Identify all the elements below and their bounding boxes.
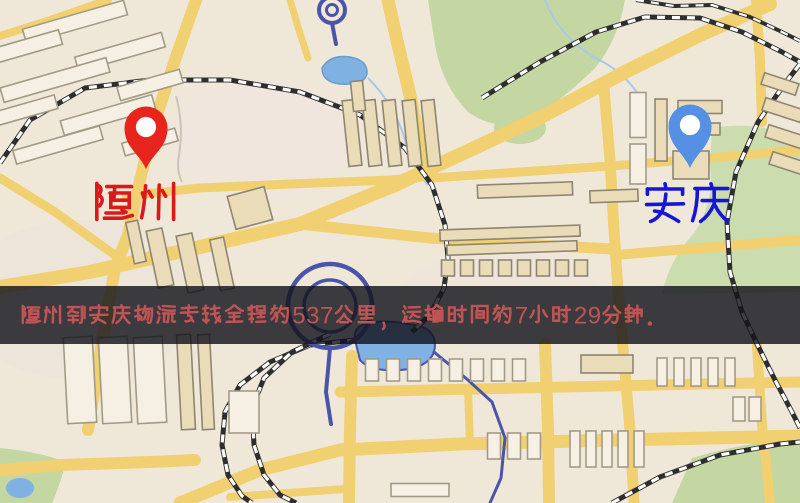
svg-text:9: 9 — [588, 303, 601, 330]
svg-text:7: 7 — [515, 303, 528, 330]
svg-text:5: 5 — [292, 303, 305, 330]
svg-text:3: 3 — [306, 303, 319, 330]
svg-text:2: 2 — [574, 303, 587, 330]
svg-text:7: 7 — [320, 303, 333, 330]
